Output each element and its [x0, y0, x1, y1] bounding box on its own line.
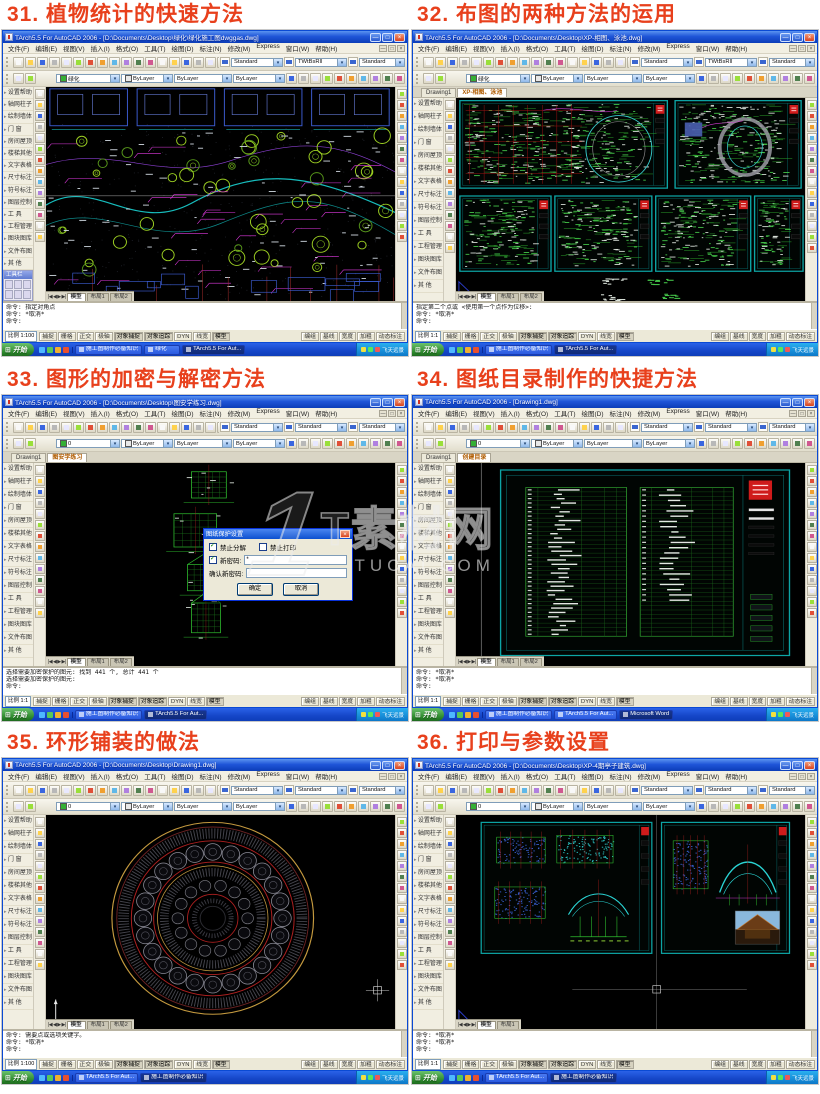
menu-item[interactable]: 帮助(H) [312, 408, 340, 418]
menu-item[interactable]: 编辑(E) [32, 43, 60, 53]
modify-tool-icon[interactable] [397, 608, 407, 618]
modify-tool-icon[interactable] [397, 100, 407, 110]
status-toggle[interactable]: 对象捕捉 [518, 1060, 547, 1069]
layout-nav-icons[interactable]: |◀ ◀ ▶ ▶| [48, 294, 66, 300]
folder-icon[interactable] [473, 712, 479, 718]
screen-menu-item[interactable]: 符号标注 [413, 919, 443, 932]
command-line[interactable]: 命令: 指定对角点 命令: *取消* 命令: [3, 301, 407, 329]
mdi-close-button[interactable]: × [807, 410, 815, 417]
cut-icon[interactable] [85, 785, 96, 796]
draw-tool-icon[interactable] [445, 608, 455, 618]
new-file-icon[interactable] [423, 422, 434, 433]
text-style-combo[interactable]: Standard▾ [641, 423, 693, 432]
fillet-icon[interactable] [804, 73, 815, 84]
screen-menu-item[interactable]: 房间屋顶 [3, 136, 33, 148]
menu-item[interactable]: 插入(I) [498, 43, 523, 53]
screen-menu-item[interactable]: 图块图库 [3, 619, 33, 632]
screen-menu-item[interactable]: 图块图库 [413, 971, 443, 984]
trim-icon[interactable] [792, 801, 803, 812]
toolbar-grip[interactable] [6, 57, 11, 67]
linetype-combo[interactable]: ByLayer▾ [174, 439, 232, 448]
properties-icon[interactable] [615, 422, 626, 433]
draw-tool-icon[interactable] [35, 949, 45, 959]
modify-tool-icon[interactable] [397, 916, 407, 926]
scale-select[interactable]: 比例 1:1 [5, 696, 31, 707]
color-combo[interactable]: ByLayer▾ [121, 802, 173, 811]
modify-tool-icon[interactable] [807, 155, 817, 165]
open-icon[interactable] [435, 57, 446, 68]
draw-tool-icon[interactable] [445, 155, 455, 165]
layer-properties-icon[interactable] [423, 438, 434, 449]
status-toggle[interactable]: 宽度 [339, 697, 357, 706]
screen-menu-item[interactable]: 楼梯其他 [413, 528, 443, 541]
redo-icon[interactable] [145, 57, 156, 68]
screen-menu-item[interactable]: 工程管理 [413, 241, 443, 254]
toolbar-grip[interactable] [416, 785, 421, 795]
status-toggle[interactable]: 加粗 [357, 332, 375, 341]
trim-icon[interactable] [792, 73, 803, 84]
draw-tool-icon[interactable] [445, 122, 455, 132]
screen-menu-item[interactable]: 绘制墙体 [3, 489, 33, 502]
screen-menu-item[interactable]: 图块图库 [3, 233, 33, 245]
menu-item[interactable]: 视图(V) [60, 771, 88, 781]
show-desktop-icon[interactable] [47, 1075, 53, 1081]
table-style-combo[interactable]: Standard▾ [359, 786, 405, 795]
menu-item[interactable]: 编辑(E) [442, 771, 470, 781]
status-toggle[interactable]: 极轴 [95, 332, 113, 341]
status-toggle[interactable]: 基线 [320, 1060, 338, 1069]
layout-tab[interactable]: 模型 [477, 293, 496, 301]
scale-icon[interactable] [780, 438, 791, 449]
trim-icon[interactable] [382, 73, 393, 84]
undo-icon[interactable] [543, 422, 554, 433]
screen-menu-item[interactable]: 工 具 [413, 593, 443, 606]
task-button[interactable]: 施工图制作必备知识 [485, 345, 552, 355]
screen-menu-item[interactable]: 工程管理 [3, 958, 33, 971]
status-toggle[interactable]: 编组 [301, 332, 319, 341]
move-icon[interactable] [346, 73, 357, 84]
toolbar-grip[interactable] [416, 57, 421, 67]
status-toggle[interactable]: 捕捉 [39, 1060, 57, 1069]
screen-menu-item[interactable]: 工 具 [3, 593, 33, 606]
rotate-icon[interactable] [358, 73, 369, 84]
fillet-icon[interactable] [804, 801, 815, 812]
command-scrollbar[interactable] [401, 668, 407, 694]
modify-tool-icon[interactable] [807, 188, 817, 198]
draw-tool-icon[interactable] [445, 243, 455, 253]
draw-tool-icon[interactable] [35, 927, 45, 937]
draw-tool-icon[interactable] [445, 850, 455, 860]
draw-tool-icon[interactable] [445, 916, 455, 926]
screen-menu-item[interactable]: 其 他 [413, 645, 443, 658]
minimize-button[interactable]: — [780, 398, 791, 407]
menu-item[interactable]: 格式(O) [523, 771, 551, 781]
task-button[interactable]: TArch5.5 For Aut... [144, 710, 207, 720]
status-toggle[interactable]: 对象追踪 [548, 697, 577, 706]
palette-button[interactable] [5, 290, 13, 299]
toolbar-grip[interactable] [6, 439, 11, 449]
screen-menu-item[interactable]: 其 他 [413, 280, 443, 293]
modify-tool-icon[interactable] [397, 575, 407, 585]
plot-preview-icon[interactable] [61, 785, 72, 796]
draw-tool-icon[interactable] [35, 916, 45, 926]
restore-button[interactable]: □ [382, 33, 393, 42]
modify-tool-icon[interactable] [807, 872, 817, 882]
screen-menu-item[interactable]: 门 窗 [3, 124, 33, 136]
status-toggle[interactable]: 动态标注 [786, 697, 815, 706]
draw-tool-icon[interactable] [445, 498, 455, 508]
scale-select[interactable]: 比例 1:1 [415, 331, 441, 342]
rotate-icon[interactable] [358, 801, 369, 812]
menu-item[interactable]: 修改(M) [225, 408, 254, 418]
new-file-icon[interactable] [13, 422, 24, 433]
status-toggle[interactable]: 线宽 [597, 697, 615, 706]
modify-tool-icon[interactable] [397, 144, 407, 154]
modify-tool-icon[interactable] [397, 564, 407, 574]
color-combo[interactable]: ByLayer▾ [531, 439, 583, 448]
mdi-close-button[interactable]: × [397, 45, 405, 52]
draw-tool-icon[interactable] [445, 564, 455, 574]
menu-item[interactable]: 工具(T) [141, 408, 168, 418]
task-button[interactable]: 施工图制作必备知识 [75, 710, 142, 720]
draw-tool-icon[interactable] [445, 144, 455, 154]
match-properties-icon[interactable] [531, 422, 542, 433]
modify-tool-icon[interactable] [397, 531, 407, 541]
modify-tool-icon[interactable] [807, 564, 817, 574]
offset-icon[interactable] [322, 438, 333, 449]
menu-item[interactable]: 工具(T) [551, 408, 578, 418]
drawing-canvas[interactable]: |◀ ◀ ▶ ▶| 模型布局1布局2 [456, 98, 805, 301]
command-line[interactable]: 选择需要加密保护的图元: 找到 441 个, 总计 441 个 选择需要加密保护… [3, 666, 407, 694]
paste-icon[interactable] [519, 57, 530, 68]
palette-button[interactable] [14, 290, 22, 299]
close-button[interactable]: × [804, 33, 815, 42]
status-toggle[interactable]: 加粗 [767, 1060, 785, 1069]
draw-tool-icon[interactable] [35, 111, 45, 121]
status-toggle[interactable]: 正交 [480, 1060, 498, 1069]
draw-tool-icon[interactable] [35, 553, 45, 563]
table-style-combo[interactable]: Standard▾ [359, 423, 405, 432]
properties-icon[interactable] [615, 785, 626, 796]
text-style-combo[interactable]: Standard▾ [641, 58, 693, 67]
fillet-icon[interactable] [394, 438, 405, 449]
layer-properties-icon[interactable] [13, 438, 24, 449]
screen-menu-item[interactable]: 绘制墙体 [413, 841, 443, 854]
screen-menu-item[interactable]: 门 窗 [3, 854, 33, 867]
scale-select[interactable]: 比例 1:100 [5, 1059, 37, 1070]
modify-tool-icon[interactable] [397, 166, 407, 176]
modify-tool-icon[interactable] [397, 498, 407, 508]
screen-menu-item[interactable]: 文件布图 [3, 246, 33, 258]
save-icon[interactable] [447, 422, 458, 433]
draw-tool-icon[interactable] [35, 960, 45, 970]
layout-tab[interactable]: 模型 [67, 658, 86, 666]
draw-tool-icon[interactable] [35, 144, 45, 154]
move-icon[interactable] [346, 801, 357, 812]
zoom-previous-icon[interactable] [603, 785, 614, 796]
document-tab[interactable]: 创建目录 [457, 453, 491, 462]
dim-style-combo[interactable]: TWtBsRll▾ [705, 58, 757, 67]
menu-item[interactable]: 插入(I) [498, 408, 523, 418]
print-icon[interactable] [49, 785, 60, 796]
document-tab[interactable]: XP-相图、泳池 [457, 88, 507, 97]
save-icon[interactable] [447, 57, 458, 68]
zoom-realtime-icon[interactable] [169, 422, 180, 433]
mirror-icon[interactable] [310, 801, 321, 812]
plot-preview-icon[interactable] [471, 57, 482, 68]
undo-icon[interactable] [543, 57, 554, 68]
menu-item[interactable]: 帮助(H) [312, 771, 340, 781]
status-toggle[interactable]: 正交 [77, 1060, 95, 1069]
match-properties-icon[interactable] [531, 57, 542, 68]
status-toggle[interactable]: 编组 [301, 1060, 319, 1069]
screen-menu-item[interactable]: 楼梯其他 [3, 528, 33, 541]
status-toggle[interactable]: 极轴 [499, 1060, 517, 1069]
designcenter-icon[interactable] [627, 422, 629, 433]
table-style-combo[interactable]: Standard▾ [769, 786, 815, 795]
pan-icon[interactable] [157, 422, 168, 433]
modify-tool-icon[interactable] [807, 938, 817, 948]
menu-item[interactable]: 修改(M) [635, 43, 664, 53]
linetype-combo[interactable]: ByLayer▾ [584, 74, 642, 83]
status-toggle[interactable]: 正交 [480, 697, 498, 706]
toolbar-grip[interactable] [416, 439, 421, 449]
command-line[interactable]: 命令: *取消* 命令: *取消* 命令: [413, 666, 817, 694]
paste-icon[interactable] [109, 785, 120, 796]
draw-tool-icon[interactable] [445, 100, 455, 110]
status-toggle[interactable]: 宽度 [339, 332, 357, 341]
screen-menu-item[interactable]: 门 窗 [413, 502, 443, 515]
task-button[interactable]: TArch5.5 For Aut... [485, 1073, 548, 1083]
mdi-minimize-button[interactable]: — [789, 45, 797, 52]
draw-tool-icon[interactable] [445, 133, 455, 143]
zoom-previous-icon[interactable] [193, 422, 204, 433]
match-properties-icon[interactable] [531, 785, 542, 796]
menu-item[interactable]: 窗口(W) [283, 408, 312, 418]
designcenter-icon[interactable] [627, 785, 629, 796]
status-toggle[interactable]: 基线 [730, 1060, 748, 1069]
toolbar-grip[interactable] [6, 802, 11, 812]
zoom-realtime-icon[interactable] [169, 57, 180, 68]
password-checkbox[interactable] [209, 556, 217, 564]
layout-nav-icons[interactable]: |◀ ◀ ▶ ▶| [48, 659, 66, 665]
copy-object-icon[interactable] [708, 801, 719, 812]
publish-icon[interactable] [483, 57, 494, 68]
menu-item[interactable]: 文件(F) [415, 43, 442, 53]
draw-tool-icon[interactable] [35, 100, 45, 110]
screen-menu-item[interactable]: 文字表格 [3, 541, 33, 554]
screen-menu-item[interactable]: 图块图库 [3, 971, 33, 984]
screen-menu-item[interactable]: 楼梯其他 [413, 163, 443, 176]
start-button[interactable]: 开始 [412, 343, 444, 356]
screen-menu-item[interactable]: 尺寸标注 [3, 172, 33, 184]
draw-tool-icon[interactable] [445, 828, 455, 838]
paste-icon[interactable] [519, 422, 530, 433]
table-style-combo[interactable]: Standard▾ [769, 423, 815, 432]
draw-tool-icon[interactable] [35, 894, 45, 904]
media-player-icon[interactable] [465, 712, 471, 718]
draw-tool-icon[interactable] [35, 221, 45, 231]
status-toggle[interactable]: 线宽 [193, 1060, 211, 1069]
status-toggle[interactable]: 编组 [711, 697, 729, 706]
menu-item[interactable]: 视图(V) [60, 408, 88, 418]
status-toggle[interactable]: 基线 [730, 332, 748, 341]
status-toggle[interactable]: 栅格 [462, 1060, 480, 1069]
toolbar-grip[interactable] [6, 785, 11, 795]
menu-item[interactable]: 文件(F) [5, 771, 32, 781]
modify-tool-icon[interactable] [397, 111, 407, 121]
dim-style-combo[interactable]: Standard▾ [705, 423, 757, 432]
status-toggle[interactable]: 加粗 [357, 697, 375, 706]
fillet-icon[interactable] [394, 73, 405, 84]
modify-tool-icon[interactable] [807, 177, 817, 187]
zoom-realtime-icon[interactable] [579, 785, 590, 796]
modify-tool-icon[interactable] [807, 586, 817, 596]
draw-tool-icon[interactable] [445, 476, 455, 486]
screen-menu-item[interactable]: 工 具 [3, 945, 33, 958]
open-icon[interactable] [435, 422, 446, 433]
status-toggle[interactable]: 栅格 [462, 332, 480, 341]
menu-item[interactable]: 标注(N) [607, 771, 635, 781]
cut-icon[interactable] [495, 422, 506, 433]
draw-tool-icon[interactable] [35, 188, 45, 198]
print-icon[interactable] [459, 422, 470, 433]
modify-tool-icon[interactable] [397, 905, 407, 915]
drawing-canvas[interactable]: |◀ ◀ ▶ ▶| 模型布局1布局2 [46, 815, 395, 1029]
open-icon[interactable] [435, 785, 446, 796]
draw-tool-icon[interactable] [35, 575, 45, 585]
draw-tool-icon[interactable] [35, 177, 45, 187]
mdi-close-button[interactable]: × [807, 45, 815, 52]
trim-icon[interactable] [382, 801, 393, 812]
palette-button[interactable] [14, 280, 22, 289]
draw-tool-icon[interactable] [35, 839, 45, 849]
draw-tool-icon[interactable] [35, 586, 45, 596]
status-toggle[interactable]: 编组 [301, 697, 319, 706]
zoom-window-icon[interactable] [591, 785, 602, 796]
array-icon[interactable] [334, 73, 345, 84]
draw-tool-icon[interactable] [445, 487, 455, 497]
drawing-canvas[interactable]: 图纸保护设置 × 禁止分解 禁止打印 [46, 463, 395, 666]
cancel-button[interactable]: 取消 [283, 583, 319, 596]
properties-icon[interactable] [615, 57, 626, 68]
screen-menu-item[interactable]: 楼梯其他 [3, 148, 33, 160]
mdi-minimize-button[interactable]: — [379, 773, 387, 780]
text-style-combo[interactable]: Standard▾ [231, 423, 283, 432]
layout-tab[interactable]: 模型 [67, 1021, 86, 1029]
modify-tool-icon[interactable] [807, 575, 817, 585]
text-style-combo[interactable]: Standard▾ [641, 786, 693, 795]
layout-tab[interactable]: 布局2 [520, 658, 542, 666]
modify-tool-icon[interactable] [807, 553, 817, 563]
modify-tool-icon[interactable] [807, 100, 817, 110]
screen-menu-item[interactable]: 其 他 [3, 997, 33, 1010]
cut-icon[interactable] [495, 57, 506, 68]
redo-icon[interactable] [145, 785, 156, 796]
offset-icon[interactable] [732, 801, 743, 812]
layer-combo[interactable]: 绿化▾ [56, 74, 120, 83]
status-toggle[interactable]: 加粗 [767, 697, 785, 706]
zoom-realtime-icon[interactable] [579, 57, 590, 68]
draw-tool-icon[interactable] [35, 905, 45, 915]
lineweight-combo[interactable]: ByLayer▾ [643, 439, 695, 448]
screen-menu-item[interactable]: 符号标注 [3, 185, 33, 197]
offset-icon[interactable] [732, 438, 743, 449]
menu-item[interactable]: 工具(T) [141, 771, 168, 781]
modify-tool-icon[interactable] [397, 133, 407, 143]
draw-tool-icon[interactable] [35, 476, 45, 486]
redo-icon[interactable] [555, 57, 566, 68]
draw-tool-icon[interactable] [35, 828, 45, 838]
menu-item[interactable]: 插入(I) [88, 771, 113, 781]
draw-tool-icon[interactable] [445, 465, 455, 475]
toolbar-grip[interactable] [416, 422, 421, 432]
draw-tool-icon[interactable] [35, 509, 45, 519]
screen-menu-item[interactable]: 工程管理 [413, 958, 443, 971]
rotate-icon[interactable] [768, 801, 779, 812]
layout-tab[interactable]: 布局1 [497, 1021, 519, 1029]
draw-tool-icon[interactable] [35, 861, 45, 871]
designcenter-icon[interactable] [217, 422, 219, 433]
modify-tool-icon[interactable] [397, 861, 407, 871]
screen-menu-item[interactable]: 符号标注 [413, 202, 443, 215]
command-scrollbar[interactable] [811, 668, 817, 694]
menu-item[interactable]: 修改(M) [225, 43, 254, 53]
mdi-restore-button[interactable]: □ [388, 45, 396, 52]
status-toggle[interactable]: 宽度 [749, 332, 767, 341]
modify-tool-icon[interactable] [397, 177, 407, 187]
draw-tool-icon[interactable] [35, 542, 45, 552]
window-titlebar[interactable]: TArch5.5 For AutoCAD 2006 - [D:\Document… [3, 396, 407, 408]
modify-tool-icon[interactable] [397, 465, 407, 475]
drawing-canvas[interactable]: |◀ ◀ ▶ ▶| 模型布局1布局2 [456, 463, 805, 666]
screen-menu-item[interactable]: 轴网柱子 [413, 828, 443, 841]
menu-item[interactable]: Express [253, 771, 282, 781]
toolbar-grip[interactable] [416, 802, 421, 812]
draw-tool-icon[interactable] [445, 927, 455, 937]
menu-item[interactable]: 标注(N) [197, 771, 225, 781]
command-scrollbar[interactable] [401, 303, 407, 329]
menu-item[interactable]: 窗口(W) [283, 771, 312, 781]
screen-menu-item[interactable]: 文字表格 [413, 176, 443, 189]
menu-item[interactable]: 标注(N) [197, 43, 225, 53]
text-style-combo[interactable]: Standard▾ [231, 58, 283, 67]
status-toggle[interactable]: 对象捕捉 [108, 697, 137, 706]
screen-menu-item[interactable]: 图层控制 [3, 197, 33, 209]
modify-tool-icon[interactable] [397, 828, 407, 838]
layout-tab[interactable]: 布局1 [497, 658, 519, 666]
show-desktop-icon[interactable] [457, 347, 463, 353]
command-line[interactable]: 指定第二个点或 <使用第一个点作为位移>: 命令: *取消* 命令: [413, 301, 817, 329]
screen-menu-item[interactable]: 文件布图 [413, 632, 443, 645]
task-button[interactable]: TArch5.5 For Aut... [554, 345, 617, 355]
modify-tool-icon[interactable] [397, 883, 407, 893]
copy-icon[interactable] [97, 785, 108, 796]
document-tab[interactable]: Drawing1 [421, 88, 456, 97]
menu-item[interactable]: 帮助(H) [722, 43, 750, 53]
menu-item[interactable]: 文件(F) [5, 43, 32, 53]
modify-tool-icon[interactable] [807, 850, 817, 860]
array-icon[interactable] [334, 801, 345, 812]
status-toggle[interactable]: 正交 [480, 332, 498, 341]
modify-tool-icon[interactable] [807, 221, 817, 231]
modify-tool-icon[interactable] [807, 144, 817, 154]
mdi-close-button[interactable]: × [397, 773, 405, 780]
zoom-window-icon[interactable] [591, 57, 602, 68]
ok-button[interactable]: 确定 [237, 583, 273, 596]
command-line[interactable]: 命令: 需要点或选项关键字。 命令: *取消* 命令: [3, 1029, 407, 1057]
draw-tool-icon[interactable] [35, 817, 45, 827]
